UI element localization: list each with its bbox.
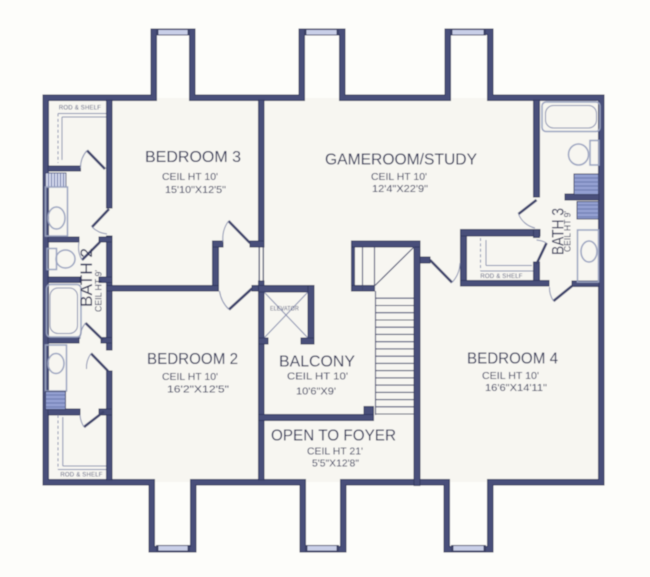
svg-text:BEDROOM 3: BEDROOM 3 [145,149,241,166]
svg-text:BALCONY: BALCONY [279,354,355,371]
svg-text:OPEN TO FOYER: OPEN TO FOYER [271,428,396,445]
svg-text:CEIL HT 10': CEIL HT 10' [162,371,218,383]
svg-text:15'10"X12'5": 15'10"X12'5" [165,184,226,196]
svg-text:BEDROOM 4: BEDROOM 4 [467,351,558,368]
svg-text:12'4"X22'9": 12'4"X22'9" [372,183,428,195]
svg-text:CEIL HT 9': CEIL HT 9' [94,270,104,312]
svg-text:10'6"X9': 10'6"X9' [296,386,336,398]
svg-text:CEIL HT 10': CEIL HT 10' [371,171,427,183]
svg-text:CEIL HT 9': CEIL HT 9' [563,211,573,252]
svg-text:ROD & SHELF: ROD & SHELF [60,473,102,479]
svg-text:ROD & SHELF: ROD & SHELF [59,106,101,112]
svg-text:CEIL HT 10': CEIL HT 10' [162,171,218,183]
svg-text:CEIL HT 10': CEIL HT 10' [287,371,348,383]
svg-text:16'2"X12'5": 16'2"X12'5" [167,384,229,396]
svg-text:CEIL HT 21': CEIL HT 21' [307,446,363,458]
svg-text:BEDROOM 2: BEDROOM 2 [147,351,238,368]
svg-text:ROD & SHELF: ROD & SHELF [480,274,522,280]
svg-text:5'5"X12'8": 5'5"X12'8" [312,458,359,470]
svg-text:GAMEROOM/STUDY: GAMEROOM/STUDY [325,152,477,169]
svg-text:ELEVATOR: ELEVATOR [270,307,299,313]
svg-text:16'6"X14'11": 16'6"X14'11" [485,382,547,394]
svg-text:CEIL HT 10': CEIL HT 10' [482,370,539,382]
